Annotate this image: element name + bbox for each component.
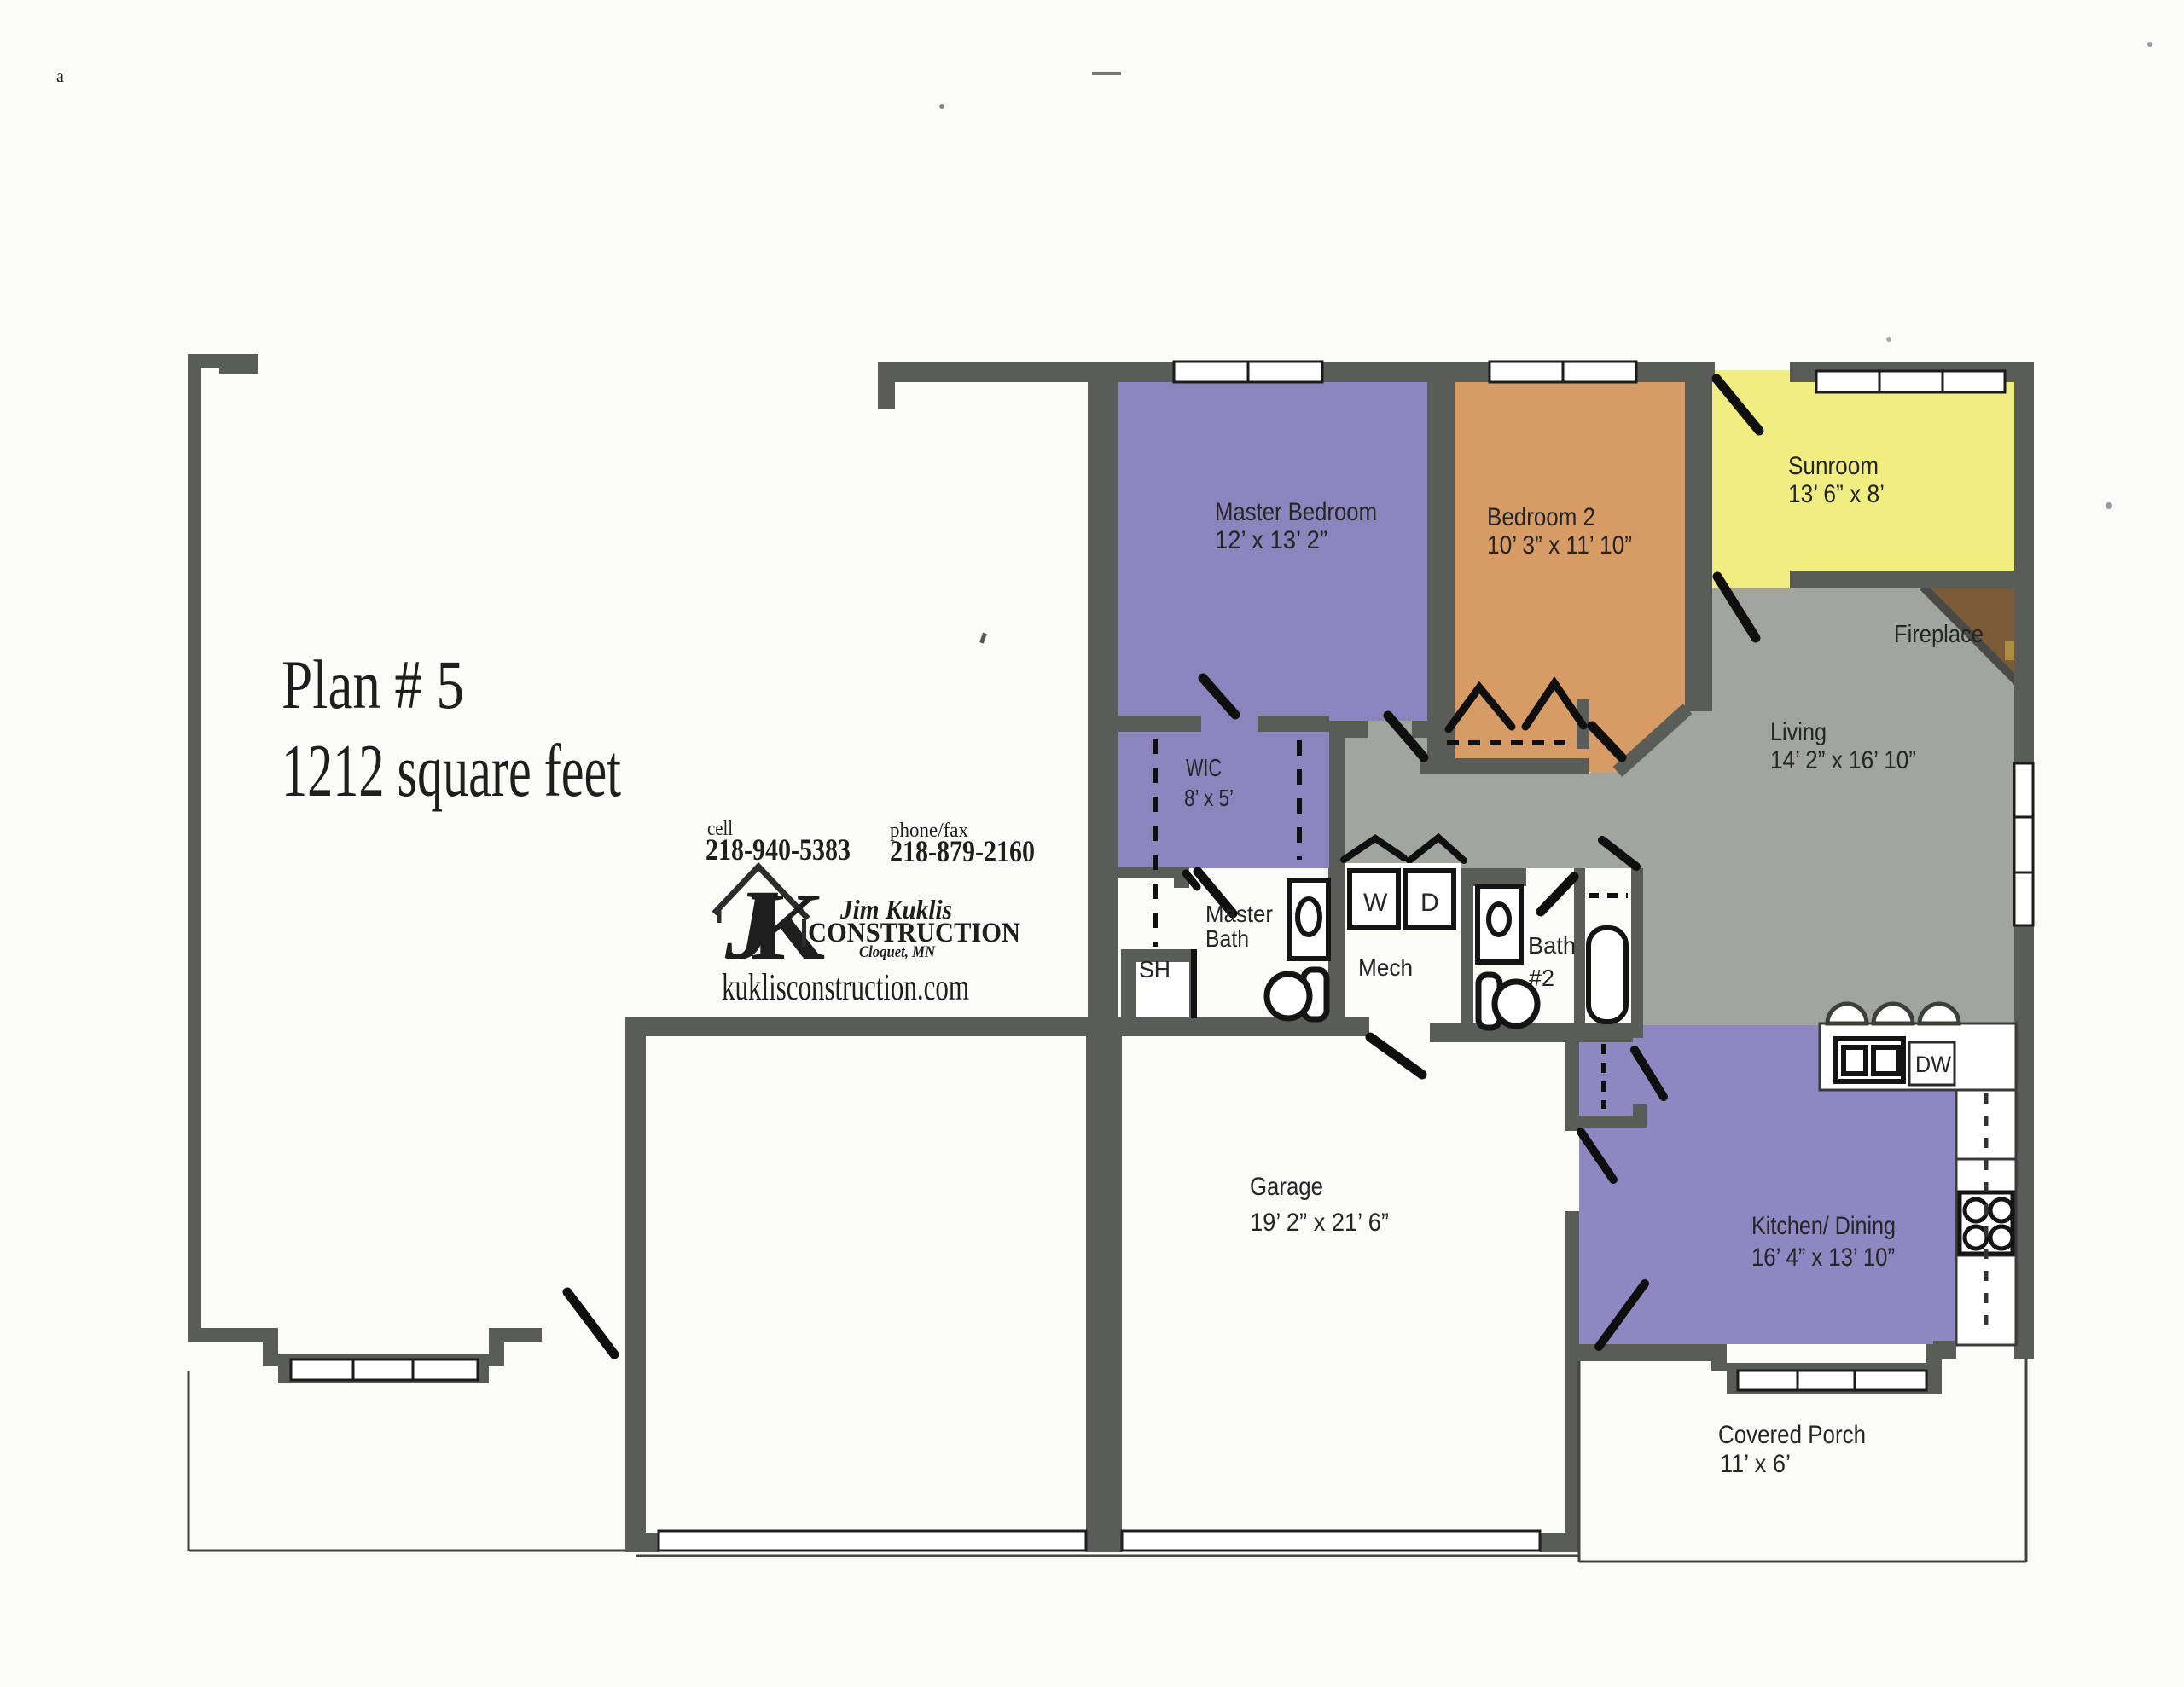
svg-text:Cloquet, MN: Cloquet, MN [859,943,936,961]
svg-text:SH: SH [1139,956,1170,983]
svg-text:Covered Porch: Covered Porch [1718,1421,1866,1449]
svg-text:DW: DW [1915,1052,1951,1077]
svg-text:a: a [56,67,64,86]
svg-text:Sunroom: Sunroom [1788,452,1879,480]
svg-text:11’ x 6’: 11’ x 6’ [1720,1450,1791,1478]
svg-text:Kitchen/ Dining: Kitchen/ Dining [1751,1212,1896,1240]
svg-text:Mech: Mech [1358,954,1413,981]
svg-text:Master: Master [1205,901,1273,927]
svg-text:Bedroom 2: Bedroom 2 [1487,503,1595,531]
svg-text:1212 square feet: 1212 square feet [282,730,621,813]
svg-text:Master Bedroom: Master Bedroom [1215,498,1377,526]
svg-text:Fireplace: Fireplace [1894,621,1984,648]
svg-text:#2: #2 [1529,965,1554,991]
svg-text:16’ 4” x 13’ 10”: 16’ 4” x 13’ 10” [1751,1244,1895,1272]
svg-text:Garage: Garage [1250,1173,1323,1201]
svg-text:Plan # 5: Plan # 5 [282,646,464,723]
svg-text:12’ x 13’ 2”: 12’ x 13’ 2” [1215,526,1327,554]
svg-text:8’ x 5’: 8’ x 5’ [1184,785,1234,811]
svg-text:W: W [1363,889,1388,917]
svg-text:WIC: WIC [1186,755,1222,782]
svg-text:kuklisconstruction.com: kuklisconstruction.com [722,966,969,1008]
svg-text:13’ 6” x 8’: 13’ 6” x 8’ [1788,480,1885,508]
svg-text:D: D [1420,889,1439,917]
svg-text:Living: Living [1770,718,1827,746]
svg-text:218-940-5383: 218-940-5383 [706,832,851,867]
svg-text:Bath: Bath [1528,932,1576,959]
svg-text:10’ 3” x 11’ 10”: 10’ 3” x 11’ 10” [1487,531,1632,559]
svg-text:Bath: Bath [1205,925,1249,952]
svg-text:19’ 2” x 21’ 6”: 19’ 2” x 21’ 6” [1250,1209,1389,1237]
svg-text:14’ 2” x 16’ 10”: 14’ 2” x 16’ 10” [1770,746,1916,774]
svg-text:218-879-2160: 218-879-2160 [890,834,1035,868]
